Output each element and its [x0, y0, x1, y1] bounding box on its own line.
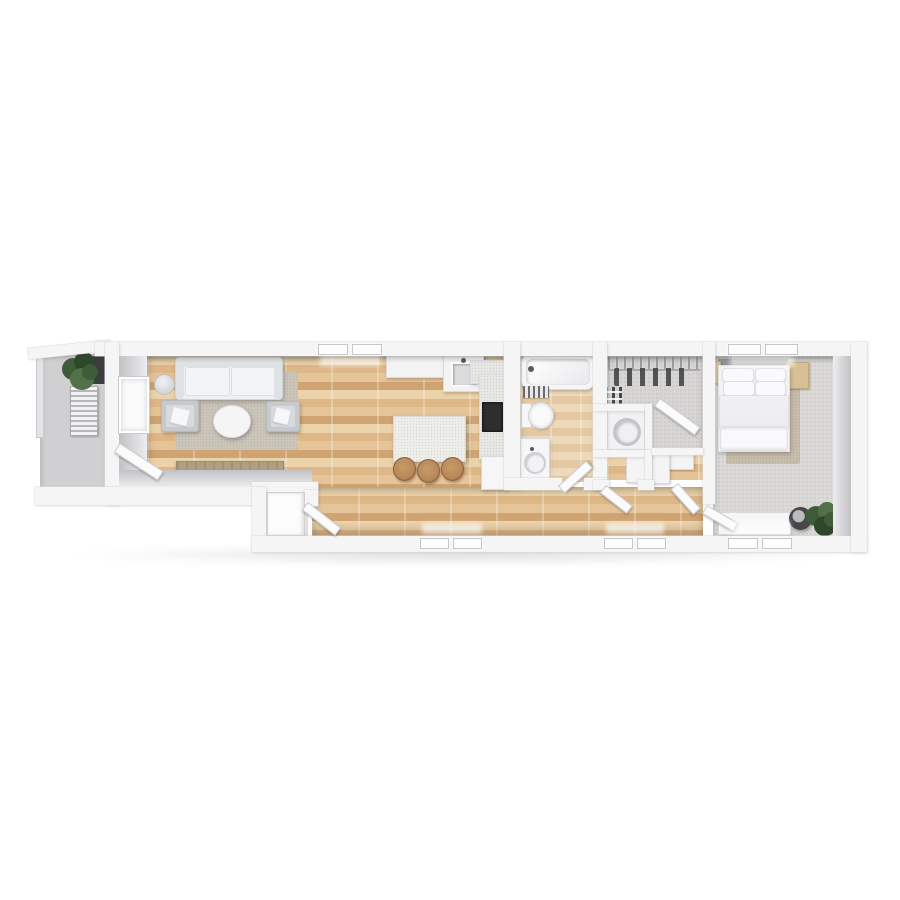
hall-bottom-window-east [604, 538, 666, 549]
window-light [320, 357, 380, 366]
kitchen-island [393, 416, 466, 462]
balcony-plant [60, 352, 102, 396]
toilet [528, 402, 554, 429]
folded-blanket [720, 426, 788, 451]
window-pane [352, 344, 382, 355]
living-top-window [318, 344, 382, 355]
duvet [719, 395, 789, 430]
armchair-left [161, 400, 199, 432]
hall-bottom-window-west [420, 538, 482, 549]
washer-drum [613, 418, 641, 446]
window-pane [762, 538, 792, 549]
sofa-cushion [185, 367, 230, 396]
pillow [723, 381, 755, 396]
window-pane [318, 344, 348, 355]
armchair-right [266, 401, 300, 432]
balcony-railing [36, 352, 44, 438]
window-pane [604, 538, 633, 549]
window-light [730, 357, 794, 367]
storage-top-wall [652, 448, 703, 455]
bedroom-top-window [728, 344, 798, 355]
bottom-wall-west [35, 487, 265, 505]
bedroom-bottom-window [728, 538, 792, 549]
window-pane [637, 538, 666, 549]
living-side-window [119, 377, 149, 433]
window-pane [765, 344, 798, 355]
hanging-clothes [614, 368, 686, 386]
storage-cabinet-side [652, 452, 670, 484]
bathtub-faucet [528, 366, 534, 372]
bathroom-closet-wall [593, 342, 607, 490]
front-door-panel [267, 492, 305, 536]
block-bottom-stub-b [638, 480, 654, 490]
closet-inner-wall-h1 [593, 404, 652, 411]
window-pane [453, 538, 482, 549]
vanity-faucet [530, 447, 534, 451]
right-wall [851, 342, 867, 552]
window-pane [728, 344, 761, 355]
bath-mat [523, 386, 549, 398]
pillow [722, 368, 754, 382]
bathroom-bottom-wall-a [504, 478, 562, 490]
kitchen-bathroom-wall [504, 342, 520, 490]
closet-inner-wall-h2 [593, 450, 652, 457]
bar-stool [441, 457, 464, 481]
cooktop [482, 402, 503, 432]
sofa-armrest [274, 358, 282, 399]
floor-plan [0, 0, 900, 900]
washing-machine [607, 410, 645, 450]
window-pane [728, 538, 758, 549]
window-light [606, 523, 664, 534]
closet-bedroom-wall [703, 342, 715, 504]
sofa-armrest [176, 358, 184, 399]
window-light [730, 521, 790, 534]
pillow [755, 381, 786, 396]
side-cabinet [626, 456, 647, 483]
bar-stool [417, 459, 440, 483]
right-wall-face [833, 356, 851, 536]
window-pane [420, 538, 449, 549]
leaf [82, 364, 98, 380]
floor-lamp [154, 374, 175, 395]
left-wall [105, 342, 119, 505]
coffee-table [213, 405, 251, 438]
sofa-cushion [231, 367, 276, 396]
bar-stool [393, 457, 416, 481]
window-light [422, 523, 482, 534]
vanity-sink [524, 452, 546, 474]
pillow [755, 368, 786, 382]
floor-plan-canvas [0, 0, 900, 900]
sofa [175, 357, 283, 400]
